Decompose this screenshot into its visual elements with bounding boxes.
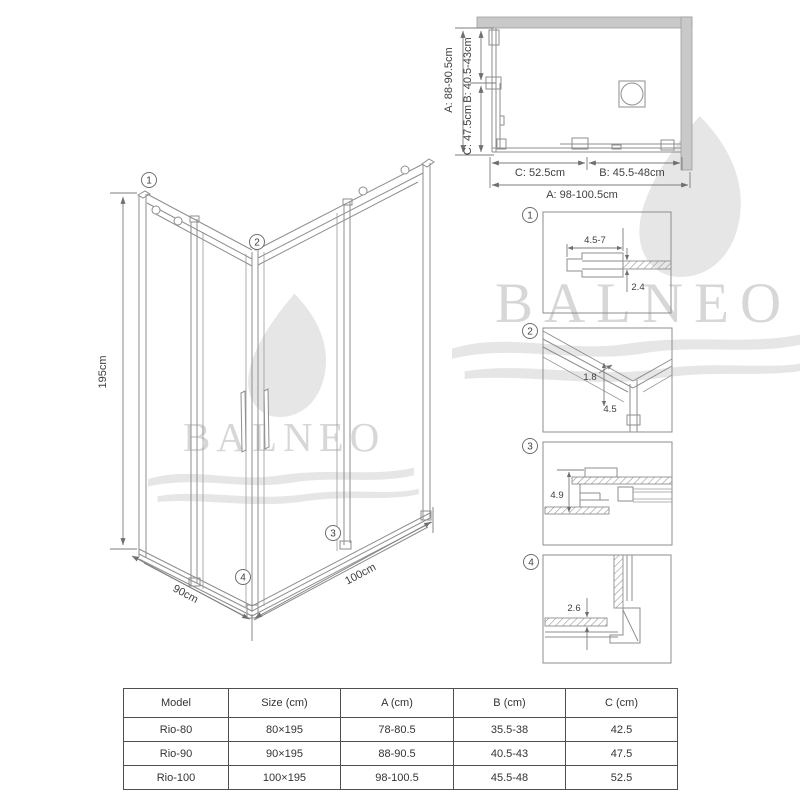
- svg-text:3: 3: [527, 442, 533, 453]
- plan-glass-panels: [486, 28, 681, 152]
- watermark-text-left: BALNEO: [183, 414, 385, 460]
- spec-cell: 42.5: [566, 718, 678, 742]
- plan-dim-c-horizontal: C: 52.5cm: [515, 167, 565, 179]
- detail-callout-2: 2: [523, 324, 538, 339]
- detail-4-box: [543, 555, 671, 663]
- table-row: Rio-100 100×195 98-100.5 45.5-48 52.5: [124, 766, 678, 790]
- detail-2-dims: [599, 363, 612, 406]
- wave-logo-icon: [452, 334, 800, 382]
- spec-cell: 52.5: [566, 766, 678, 790]
- plan-dim-b-vertical: B: 40.5-43cm: [462, 37, 474, 102]
- detail-3-dim-1: 4.9: [550, 490, 563, 501]
- detail-callout-3: 3: [523, 439, 538, 454]
- detail-2-dim-1: 1.8: [583, 372, 596, 383]
- detail-4-drawing: [545, 555, 640, 643]
- plan-dim-a-vertical: A: 88-90.5cm: [443, 47, 455, 112]
- drain-square: [619, 81, 645, 107]
- iso-callout-4: 4: [236, 570, 251, 585]
- detail-view-3: 4.9 3: [523, 439, 673, 546]
- spec-cell: 100×195: [229, 766, 341, 790]
- header-a: A (cm): [341, 689, 454, 718]
- wall-top: [477, 17, 692, 28]
- technical-drawing-page: BALNEO BALNEO: [0, 0, 800, 800]
- leaf-logo-icon: [248, 294, 326, 417]
- svg-text:2: 2: [254, 238, 260, 249]
- wall-right: [681, 17, 692, 170]
- svg-text:4: 4: [528, 558, 534, 569]
- iso-callout-2: 2: [250, 235, 265, 250]
- detail-3-drawing: [545, 468, 672, 514]
- header-model: Model: [124, 689, 229, 718]
- plan-dim-a-horizontal: A: 98-100.5cm: [546, 189, 618, 201]
- detail-2-dim-2: 4.5: [603, 404, 616, 415]
- table-row: Rio-80 80×195 78-80.5 35.5-38 42.5: [124, 718, 678, 742]
- table-row: Rio-90 90×195 88-90.5 40.5-43 47.5: [124, 742, 678, 766]
- plan-view: A: 88-90.5cm B: 40.5-43cm C: 47.5cm C: 5…: [443, 17, 692, 201]
- svg-text:1: 1: [146, 176, 152, 187]
- detail-1-dim-1: 4.5-7: [584, 235, 606, 246]
- svg-text:3: 3: [330, 529, 336, 540]
- isometric-view: 195cm 90cm 100cm 1 2 3 4: [97, 159, 434, 641]
- watermark-right: BALNEO: [452, 116, 800, 382]
- iso-height-label: 195cm: [97, 355, 109, 388]
- plan-dimensions: A: 88-90.5cm B: 40.5-43cm C: 47.5cm C: 5…: [443, 28, 690, 201]
- spec-cell: 45.5-48: [454, 766, 566, 790]
- header-size: Size (cm): [229, 689, 341, 718]
- spec-cell: 98-100.5: [341, 766, 454, 790]
- plan-dim-c-vertical: C: 47.5cm: [462, 105, 474, 155]
- spec-cell: 35.5-38: [454, 718, 566, 742]
- svg-text:1: 1: [527, 211, 533, 222]
- spec-cell: 40.5-43: [454, 742, 566, 766]
- spec-cell: 80×195: [229, 718, 341, 742]
- spec-cell: 78-80.5: [341, 718, 454, 742]
- spec-cell: 90×195: [229, 742, 341, 766]
- spec-cell: 88-90.5: [341, 742, 454, 766]
- detail-callout-4: 4: [524, 555, 539, 570]
- spec-cell: Rio-90: [124, 742, 229, 766]
- detail-callout-1: 1: [523, 208, 538, 223]
- detail-view-4: 2.6 4: [524, 555, 672, 664]
- spec-cell: Rio-80: [124, 718, 229, 742]
- spec-header-row: Model Size (cm) A (cm) B (cm) C (cm): [124, 689, 678, 718]
- svg-text:2: 2: [527, 327, 533, 338]
- spec-cell: Rio-100: [124, 766, 229, 790]
- header-b: B (cm): [454, 689, 566, 718]
- detail-1-dim-2: 2.4: [631, 282, 644, 293]
- wave-logo-icon: [148, 468, 419, 504]
- spec-table: Model Size (cm) A (cm) B (cm) C (cm) Rio…: [123, 688, 678, 790]
- plan-dim-b-horizontal: B: 45.5-48cm: [599, 167, 664, 179]
- drawing-canvas: BALNEO BALNEO: [0, 0, 800, 800]
- detail-4-dim-1: 2.6: [567, 603, 580, 614]
- watermark-left: BALNEO: [148, 294, 419, 505]
- header-c: C (cm): [566, 689, 678, 718]
- iso-callout-3: 3: [326, 526, 341, 541]
- spec-cell: 47.5: [566, 742, 678, 766]
- svg-text:4: 4: [240, 573, 246, 584]
- iso-callout-1: 1: [142, 173, 157, 188]
